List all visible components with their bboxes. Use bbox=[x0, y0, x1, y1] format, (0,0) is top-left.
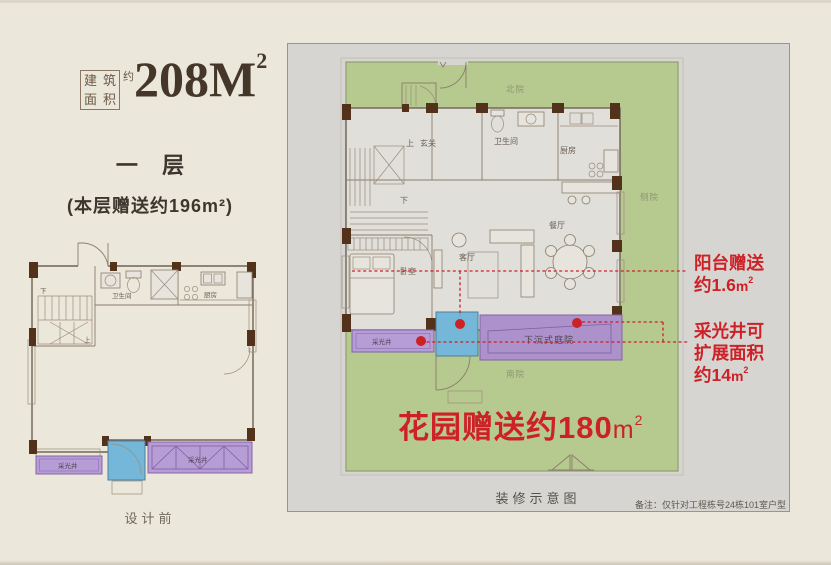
label-up: 上 bbox=[84, 335, 91, 344]
floor-bonus-text: (本层赠送约196m²) bbox=[10, 192, 290, 218]
annotation-lightwell-line3: 约14m2 bbox=[694, 365, 748, 385]
left-plan-balcony bbox=[108, 441, 145, 494]
garden-gift-value: 花园赠送约180 bbox=[398, 410, 613, 445]
label-lightwell-right: 采光井 bbox=[188, 455, 208, 464]
label-south-yard: 南院 bbox=[506, 369, 525, 379]
annotation-balcony-line2: 约1.6m2 bbox=[694, 275, 753, 295]
annotation-lightwell-line2: 扩展面积 bbox=[694, 343, 764, 363]
prefix-char: 建 bbox=[84, 74, 97, 87]
label-foyer: 玄关 bbox=[420, 138, 436, 148]
right-floorplan-panel: 采光井 下沉式庭院 北院 侧院 南院 上 玄关 下 卫生间 厨房 餐厅 客厅 卧… bbox=[285, 42, 791, 513]
garden-gift-sup: 2 bbox=[635, 412, 644, 428]
garden-gift-text: 花园赠送约180m2 bbox=[398, 410, 643, 445]
label-side-yard: 侧院 bbox=[640, 192, 659, 202]
dot-balcony bbox=[455, 319, 465, 329]
label-up: 上 bbox=[406, 139, 414, 148]
lightwell-value: 约14 bbox=[694, 365, 731, 385]
prefix-approx: 约 bbox=[123, 68, 134, 84]
label-lightwell: 采光井 bbox=[372, 337, 392, 346]
left-plan-lightwell-left: 采光井 bbox=[36, 456, 102, 474]
label-down: 下 bbox=[400, 196, 408, 205]
label-bathroom: 卫生间 bbox=[112, 291, 132, 300]
right-plan-note: 备注：仅针对工程栋号24栋101室户型 bbox=[635, 499, 786, 510]
label-kitchen: 厨房 bbox=[560, 145, 576, 155]
lightwell-unit: m bbox=[731, 368, 743, 384]
floor-title: 一层 bbox=[30, 148, 270, 180]
label-dining: 餐厅 bbox=[549, 221, 565, 230]
label-north-yard: 北院 bbox=[506, 84, 525, 94]
left-plan-caption: 设计前 bbox=[30, 508, 270, 527]
label-sunken-courtyard: 下沉式庭院 bbox=[524, 334, 574, 345]
prefix-char: 面 bbox=[84, 93, 97, 106]
area-prefix-box: 建 筑 面 积 bbox=[80, 70, 120, 110]
area-superscript: 2 bbox=[256, 48, 267, 73]
label-kitchen: 厨房 bbox=[204, 290, 217, 299]
label-lightwell-left: 采光井 bbox=[58, 461, 78, 470]
left-floorplan: 下 上 卫生间 厨房 采光井 bbox=[24, 236, 276, 506]
left-plan-piers bbox=[29, 262, 256, 454]
prefix-char: 筑 bbox=[103, 74, 116, 87]
garden-gift-unit: m bbox=[613, 416, 635, 444]
left-plan-lightwell-right: 采光井 bbox=[148, 442, 252, 473]
annotation-lightwell-line1: 采光井可 bbox=[693, 321, 764, 341]
marketing-floorplan-page: 建 筑 面 积 约 208M2 一层 (本层赠送约196m²) bbox=[0, 0, 831, 565]
area-number: 208M bbox=[134, 51, 256, 107]
area-title: 建 筑 面 积 约 208M2 bbox=[78, 52, 298, 122]
dot-lightwell bbox=[416, 336, 426, 346]
label-bathroom: 卫生间 bbox=[494, 136, 518, 146]
bedroom-bed bbox=[350, 254, 394, 314]
balcony-sup: 2 bbox=[748, 275, 753, 285]
lightwell-sup: 2 bbox=[743, 365, 748, 375]
label-down: 下 bbox=[40, 287, 47, 295]
prefix-char: 积 bbox=[103, 93, 116, 106]
area-value: 208M2 bbox=[134, 48, 267, 108]
label-living: 客厅 bbox=[459, 252, 475, 262]
right-plan-caption: 装修示意图 bbox=[495, 491, 580, 506]
balcony-unit: m bbox=[736, 278, 748, 294]
dot-courtyard bbox=[572, 318, 582, 328]
balcony-value: 约1.6 bbox=[694, 275, 736, 295]
annotation-balcony-line1: 阳台赠送 bbox=[694, 253, 764, 273]
